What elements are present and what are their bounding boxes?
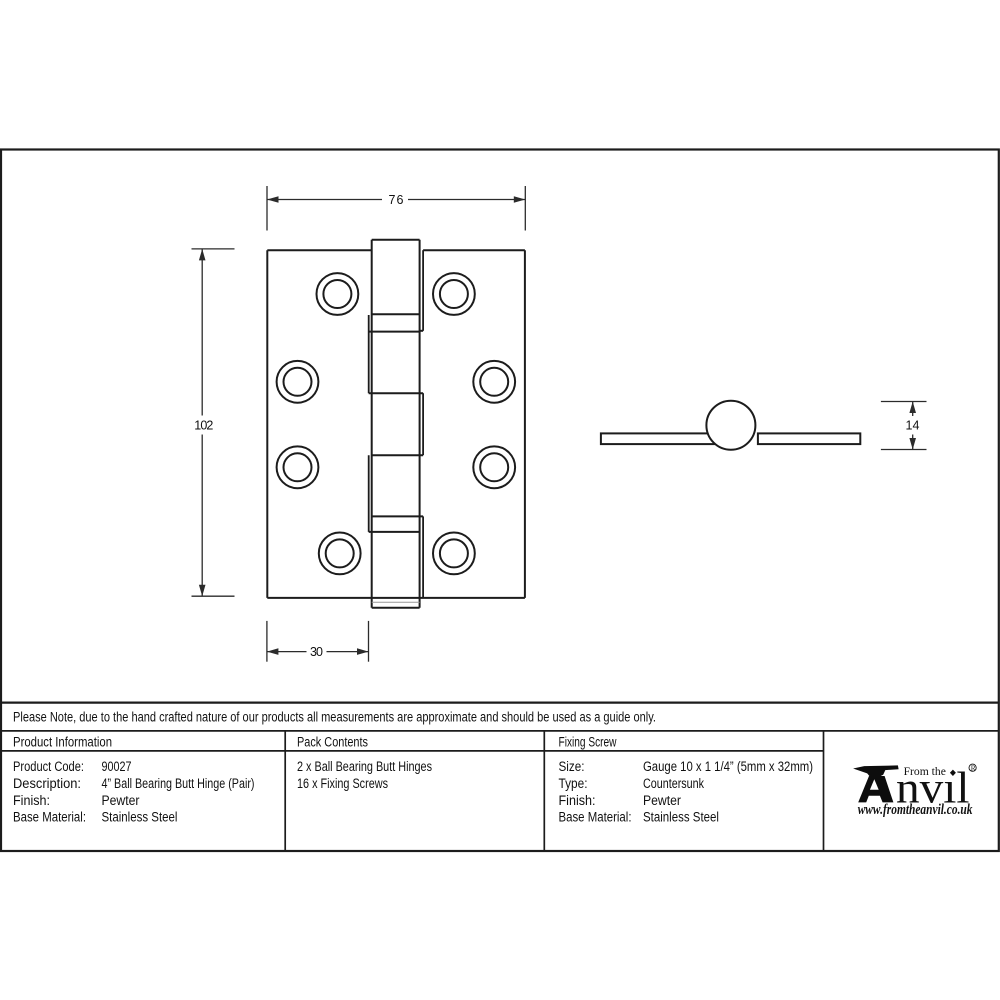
- svg-text:www.fromtheanvil.co.uk: www.fromtheanvil.co.uk: [858, 802, 973, 818]
- svg-text:Countersunk: Countersunk: [643, 776, 704, 791]
- svg-text:Please Note, due to the hand c: Please Note, due to the hand crafted nat…: [13, 709, 656, 724]
- svg-text:R: R: [971, 764, 976, 772]
- svg-text:Finish:: Finish:: [559, 793, 596, 808]
- svg-text:16 x Fixing Screws: 16 x Fixing Screws: [297, 776, 388, 791]
- svg-text:76: 76: [389, 193, 404, 207]
- svg-text:2 x Ball Bearing Butt Hinges: 2 x Ball Bearing Butt Hinges: [297, 759, 432, 774]
- svg-text:90027: 90027: [102, 759, 132, 774]
- svg-text:Gauge 10 x 1 1/4” (5mm x 32mm): Gauge 10 x 1 1/4” (5mm x 32mm): [643, 759, 813, 774]
- svg-text:Pewter: Pewter: [102, 793, 140, 808]
- svg-text:Size:: Size:: [559, 759, 585, 774]
- svg-text:Pewter: Pewter: [643, 793, 681, 808]
- svg-text:Type:: Type:: [559, 776, 588, 791]
- svg-text:14: 14: [906, 419, 920, 433]
- svg-text:102: 102: [194, 418, 213, 432]
- svg-text:Product Information: Product Information: [13, 734, 112, 749]
- svg-text:Description:: Description:: [13, 776, 81, 791]
- svg-text:Fixing Screw: Fixing Screw: [559, 734, 617, 749]
- svg-text:Stainless Steel: Stainless Steel: [102, 809, 178, 824]
- svg-text:Stainless Steel: Stainless Steel: [643, 809, 719, 824]
- svg-text:30: 30: [310, 645, 323, 659]
- svg-text:Pack Contents: Pack Contents: [297, 734, 368, 749]
- svg-text:Base Material:: Base Material:: [559, 809, 632, 824]
- svg-text:Product Code:: Product Code:: [13, 759, 84, 774]
- svg-text:Base Material:: Base Material:: [13, 809, 86, 824]
- svg-text:4” Ball Bearing Butt Hinge (Pa: 4” Ball Bearing Butt Hinge (Pair): [102, 776, 255, 791]
- svg-text:Finish:: Finish:: [13, 793, 50, 808]
